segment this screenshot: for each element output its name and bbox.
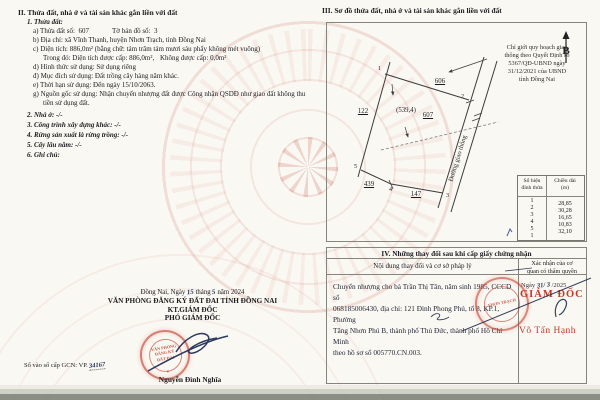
table-vertex-id: 2 [518, 205, 546, 212]
vertex-label-4: 4 [389, 187, 392, 194]
planning-note-line: Chỉ giới quy hoạch giao [487, 44, 587, 52]
section4-header-line [327, 274, 586, 275]
land-certificate-page: II. Thửa đất, nhà ở và tài sản khác gắn … [0, 0, 600, 400]
nam-label: năm 2024 [217, 289, 244, 296]
planning-note-line: 31/12/2021 của UBND [487, 68, 587, 76]
pho-giam-doc: PHÓ GIÁM ĐỐC [95, 314, 290, 322]
field-dia-chi: b) Địa chỉ: xã Vĩnh Thanh, huyện Nhơn Tr… [33, 37, 206, 45]
neighbor-parcel-122: 122 [351, 108, 375, 115]
field-khong-duoc-cap: Không được cấp: 0,0m² [160, 55, 226, 63]
office-name: VĂN PHÒNG ĐĂNG KÝ ĐẤT ĐAI TỈNH ĐỒNG NAI [95, 297, 290, 305]
vertex-label-2: 2 [461, 94, 464, 101]
field-nguon-goc-2: tiền sử dụng đất. [43, 100, 90, 108]
serial-label: Số vào sổ cấp GCN: VP. [24, 362, 88, 369]
table-length: 28,85 [546, 201, 584, 208]
field-thua-dat-heading: 1. Thửa đất: [27, 19, 63, 27]
table-length: 30,28 [546, 208, 584, 215]
changes-box: IV. Những thay đổi sau khi cấp giấy chứn… [326, 247, 587, 384]
kt-giam-doc: KT.GIÁM ĐỐC [95, 306, 290, 314]
vertex-table: Số hiệu đỉnh thửa Chiều dài (m) 1 2 3 4 … [517, 175, 585, 241]
table-vertex-id: 5 [518, 226, 546, 233]
section4-title: IV. Những thay đổi sau khi cấp giấy chứn… [327, 249, 586, 258]
director-title: GIÁM ĐỐC [520, 289, 584, 300]
table-header-length: Chiều dài (m) [546, 178, 584, 193]
serial-line: Số vào sổ cấp GCN: VP. 34167 [24, 362, 106, 370]
transfer-line: Tăng Nhơn Phú B, thành phố Thủ Đức, thàn… [333, 325, 515, 347]
field-thoi-han-su-dung: e) Thời hạn sử dụng: Đến ngày 15/10/2063… [33, 82, 155, 90]
place-date-prefix: Đồng Nai, Ngày [141, 289, 186, 296]
section2-title: II. Thửa đất, nhà ở và tài sản khác gắn … [18, 8, 178, 17]
table-header-text: (m) [546, 185, 584, 192]
field-nguon-goc-1: g) Nguồn gốc sử dụng: Nhận chuyển nhượng… [33, 91, 305, 99]
field-thua-dat-so: a) Thửa đất số: 607 [33, 28, 89, 36]
month-handwritten: 5 [212, 289, 216, 296]
section4-title-line [327, 258, 586, 259]
neighbor-parcel-439: 439 [357, 181, 381, 188]
neighbor-parcel-147: 147 [404, 191, 428, 198]
table-length: 10,83 [546, 222, 584, 229]
vertex-label-3: 3 [446, 193, 449, 200]
vertex-label-5: 5 [354, 164, 357, 171]
section3-title: III. Sơ đồ thửa đất, nhà ở và tài sản kh… [322, 6, 502, 15]
confirm-date-year: /2025 [552, 282, 567, 289]
planning-note-line: 5367/QĐ-UBND ngày [487, 60, 587, 68]
table-vertex-id: 4 [518, 219, 546, 226]
vertex-label-1: 1 [378, 66, 381, 73]
thang-label: tháng [196, 289, 211, 296]
table-header-vertex: Số hiệu đỉnh thửa [518, 178, 546, 193]
field-cay-lau-nam: 5. Cây lâu năm: -/- [27, 142, 82, 150]
field-rung-san-xuat: 4. Rừng sản xuất là rừng trồng: -/- [27, 132, 128, 140]
director-name: Võ Tấn Hạnh [519, 326, 576, 336]
parcel-number-label: 607 [416, 112, 440, 119]
field-nha-o: 2. Nhà ở: -/- [27, 112, 63, 120]
neighbor-parcel-606: 606 [428, 78, 452, 85]
place-date-line: Đồng Nai, Ngày 15 tháng 5 năm 2024 [110, 289, 275, 296]
col2-header-text: Xác nhận của cơ [518, 260, 586, 268]
serial-handwritten: 34167 [89, 361, 106, 371]
planning-note-line: thông theo Quyết Định số [487, 52, 587, 60]
field-dien-tich-duoc-cap: Trong đó: Diện tích được cấp: 886,0m², [43, 55, 154, 63]
field-muc-dich-su-dung: đ) Mục đích sử dụng: Đất trồng cây hàng … [33, 73, 179, 81]
field-hinh-thuc-su-dung: d) Hình thức sử dụng: Sử dụng riêng [33, 64, 136, 72]
field-to-ban-do: Tờ bản đồ số: 3 [112, 28, 158, 36]
field-cong-trinh: 3. Công trình xây dựng khác: -/- [27, 122, 121, 130]
bottom-scan-edge [0, 385, 600, 400]
table-length: 16,65 [546, 215, 584, 222]
transfer-line: theo hồ sơ số 005770.CN.003. [333, 347, 515, 358]
table-vertex-id: 3 [518, 212, 546, 219]
section4-col1-header: Nội dung thay đổi và cơ sở pháp lý [327, 263, 518, 271]
planning-note: Chỉ giới quy hoạch giao thông theo Quyết… [487, 44, 587, 84]
field-dien-tich: c) Diện tích: 886,0m² (bằng chữ: tám tră… [33, 46, 260, 54]
planning-note-line: tỉnh Đồng Nai [487, 76, 587, 84]
day-handwritten: 15 [187, 289, 194, 297]
table-vertex-id: 1 [518, 233, 546, 240]
field-ghi-chu: 6. Ghi chú: [27, 152, 60, 160]
table-header-text: đỉnh thửa [518, 185, 546, 192]
table-header-line [518, 196, 584, 197]
signer-name: Nguyễn Đình Nghĩa [130, 375, 250, 384]
table-length: 32,10 [546, 229, 584, 236]
table-header-text: Số hiệu [518, 178, 546, 185]
table-vertex-id: 1 [518, 198, 546, 205]
